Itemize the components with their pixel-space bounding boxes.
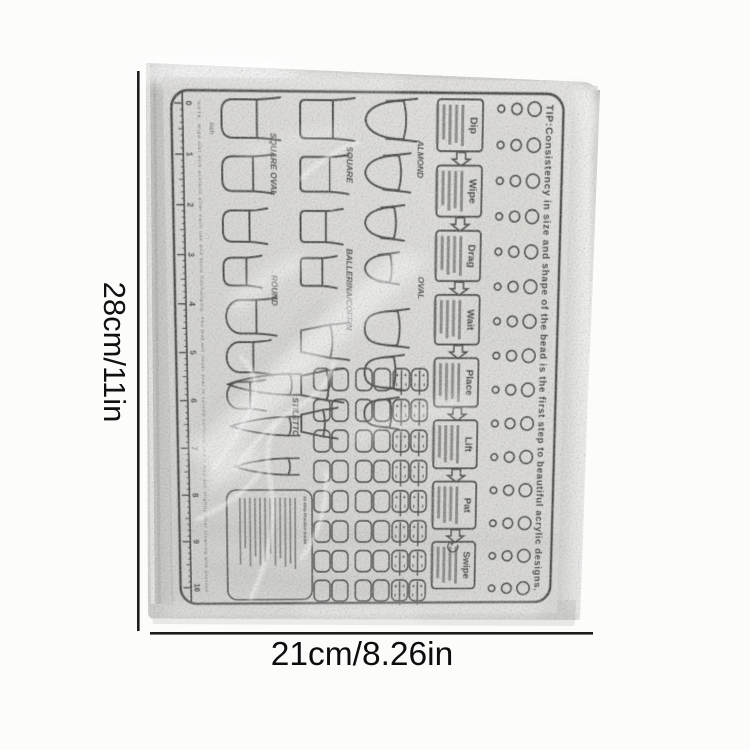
svg-text:21cm/8.26in: 21cm/8.26in — [271, 636, 454, 673]
svg-text:28cm/11in: 28cm/11in — [97, 282, 132, 423]
